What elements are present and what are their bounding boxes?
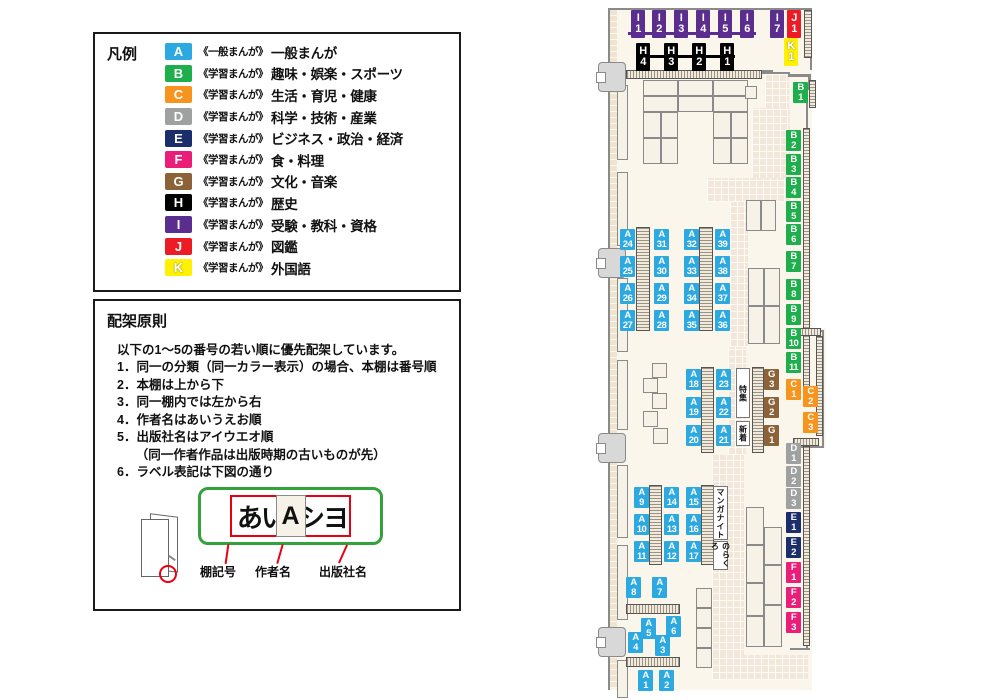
- shelf-unit: [643, 138, 661, 164]
- door: [598, 62, 626, 92]
- principle-item: 4．作者名はあいうえお順: [117, 412, 436, 430]
- shelf-label-D3: D3: [786, 488, 801, 509]
- pointer-line: [276, 544, 283, 564]
- shelf-label-B7: B7: [786, 251, 801, 272]
- legend-type-label: 《一般まんが》: [198, 44, 268, 59]
- shelf-label-A1: A1: [638, 670, 653, 691]
- shelf-label-A24: A24: [620, 229, 635, 250]
- shelf-unit: [764, 268, 780, 306]
- shelf-strip: [803, 446, 810, 646]
- shelf-label-A4: A4: [628, 632, 643, 653]
- shelf-unit: [748, 268, 764, 306]
- shelf-label-B11: B11: [786, 352, 801, 373]
- shelf-unit: [678, 80, 713, 96]
- legend-type-label: 《学習まんが》: [198, 109, 268, 124]
- wall: [790, 648, 810, 650]
- shelf-label-K1: K1: [784, 38, 798, 66]
- legend-category-label: 図鑑: [271, 236, 297, 256]
- legend-row-I: I 《学習まんが》 受験・教科・資格: [165, 214, 403, 236]
- shelf-label-D1: D1: [786, 443, 801, 464]
- shelf-label-A33: A33: [684, 256, 699, 277]
- shelf-strip: [701, 367, 714, 453]
- shelf-strip: [649, 485, 662, 565]
- book-icon: [141, 515, 181, 579]
- shelf-unit: [661, 138, 678, 164]
- shelf-unit: [643, 411, 658, 427]
- shelf-label-B1: B1: [793, 82, 808, 103]
- shelf-label-C1: C1: [786, 379, 801, 400]
- shelf-label-A35: A35: [684, 310, 699, 331]
- walkway: [712, 655, 808, 680]
- shelf-unit: [696, 608, 712, 628]
- legend-title: 凡例: [107, 43, 137, 64]
- legend-row-D: D 《学習まんが》 科学・技術・産業: [165, 106, 403, 128]
- shelf-label-A28: A28: [654, 310, 669, 331]
- shelf-unit: [713, 112, 731, 138]
- page: { "legend": { "title": "凡例", "items": [ …: [0, 0, 1000, 700]
- shelf-label-A29: A29: [654, 283, 669, 304]
- principles-list: 1．同一の分類（同一カラー表示）の場合、本棚は番号順 2．本棚は上から下 3．同…: [117, 359, 436, 482]
- shelf-label-A23: A23: [716, 369, 731, 390]
- legend-category-label: 文化・音楽: [271, 171, 337, 191]
- shelf-unit: [617, 85, 628, 160]
- shelf-unit: [761, 200, 776, 231]
- shelf-label-A31: A31: [654, 229, 669, 250]
- walkway: [707, 178, 790, 202]
- shelf-label-A34: A34: [684, 283, 699, 304]
- shelf-label-G1: G1: [764, 425, 779, 446]
- legend-row-J: J 《学習まんが》 図鑑: [165, 235, 403, 257]
- new-arrivals-panel: 新着: [736, 421, 750, 446]
- shelf-unit: [746, 507, 764, 545]
- shelf-unit: [764, 605, 782, 647]
- norakuro-panel: のらくろ: [713, 541, 728, 570]
- shelf-label-G3: G3: [764, 369, 779, 390]
- legend-color-chip: B: [165, 65, 192, 82]
- legend-color-chip: F: [165, 151, 192, 168]
- shelf-unit: [643, 112, 661, 138]
- shelf-strip: [699, 227, 713, 331]
- shelf-label-I2: I2: [652, 10, 666, 38]
- shelf-label-A22: A22: [716, 397, 731, 418]
- shelf-label-B10: B10: [786, 328, 801, 349]
- shelf-unit: [643, 96, 678, 112]
- shelf-unit: [652, 363, 667, 378]
- caption-author: 作者名: [255, 563, 291, 580]
- legend-color-chip: C: [165, 86, 192, 103]
- manga-night-panel: マンガナイト: [713, 486, 728, 540]
- principles-intro: 以下の1～5の番号の若い順に優先配架しています。: [117, 339, 404, 358]
- shelf-strip: [626, 604, 680, 614]
- label-position-ring: [159, 565, 177, 583]
- legend-rows: A 《一般まんが》 一般まんが B 《学習まんが》 趣味・娯楽・スポーツ C 《…: [165, 41, 403, 279]
- shelf-label-A14: A14: [664, 487, 679, 508]
- shelf-label-B9: B9: [786, 304, 801, 325]
- shelf-label-A38: A38: [715, 256, 730, 277]
- legend-row-A: A 《一般まんが》 一般まんが: [165, 41, 403, 63]
- special-feature-panel: 特集: [736, 368, 750, 418]
- walkway: [765, 74, 789, 110]
- shelf-label-A15: A15: [686, 487, 701, 508]
- shelf-strip: [809, 80, 816, 108]
- legend-box: 凡例 A 《一般まんが》 一般まんが B 《学習まんが》 趣味・娯楽・スポーツ …: [93, 32, 461, 292]
- legend-type-label: 《学習まんが》: [198, 87, 268, 102]
- shelf-label-A37: A37: [715, 283, 730, 304]
- shelf-label-E2: E2: [786, 537, 801, 558]
- shelf-label-H4: H4: [636, 43, 650, 71]
- shelf-strip: [636, 227, 650, 331]
- shelf-label-G2: G2: [764, 397, 779, 418]
- shelf-strip: [752, 367, 764, 453]
- pointer-line: [338, 544, 348, 563]
- legend-row-E: E 《学習まんが》 ビジネス・政治・経済: [165, 127, 403, 149]
- label-example-shelf-code: A: [276, 495, 306, 537]
- legend-type-label: 《学習まんが》: [198, 66, 268, 81]
- principles-title: 配架原則: [107, 310, 167, 331]
- shelf-label-H3: H3: [664, 43, 678, 71]
- wall: [788, 74, 810, 77]
- shelf-unit: [764, 565, 782, 605]
- caption-publisher: 出版社名: [319, 563, 367, 580]
- shelf-unit: [748, 306, 764, 344]
- legend-type-label: 《学習まんが》: [198, 217, 268, 232]
- shelf-label-F1: F1: [786, 562, 801, 583]
- shelf-label-A10: A10: [634, 514, 649, 535]
- legend-color-chip: A: [165, 43, 192, 60]
- shelf-unit: [713, 80, 748, 96]
- legend-color-chip: K: [165, 259, 192, 276]
- legend-row-B: B 《学習まんが》 趣味・娯楽・スポーツ: [165, 63, 403, 85]
- shelf-unit: [746, 200, 761, 231]
- shelf-label-A32: A32: [684, 229, 699, 250]
- shelf-unit: [746, 583, 764, 616]
- shelf-unit: [745, 86, 757, 99]
- shelf-label-A18: A18: [686, 369, 701, 390]
- shelf-label-I6: I6: [740, 10, 754, 38]
- shelf-label-A25: A25: [620, 256, 635, 277]
- wall: [608, 8, 610, 690]
- shelf-label-I5: I5: [718, 10, 732, 38]
- shelf-unit: [653, 428, 668, 444]
- legend-type-label: 《学習まんが》: [198, 260, 268, 275]
- legend-type-label: 《学習まんが》: [198, 131, 268, 146]
- shelf-label-A19: A19: [686, 397, 701, 418]
- shelf-unit: [696, 648, 712, 668]
- legend-color-chip: E: [165, 130, 192, 147]
- legend-category-label: 外国語: [271, 258, 311, 278]
- shelf-strip: [803, 128, 810, 400]
- walkway: [752, 108, 790, 180]
- shelf-label-A16: A16: [686, 514, 701, 535]
- legend-category-label: 歴史: [271, 193, 297, 213]
- legend-category-label: ビジネス・政治・経済: [271, 128, 403, 148]
- shelf-strip: [626, 657, 680, 667]
- shelf-label-I4: I4: [696, 10, 710, 38]
- shelf-unit: [764, 527, 782, 565]
- shelf-unit: [678, 96, 713, 112]
- shelf-label-F2: F2: [786, 587, 801, 608]
- principle-item: 5．出版社名はアイウエオ順: [117, 429, 436, 447]
- shelf-label-A36: A36: [715, 310, 730, 331]
- shelf-label-D2: D2: [786, 466, 801, 487]
- shelf-label-C3: C3: [803, 412, 818, 433]
- shelf-label-C2: C2: [803, 386, 818, 407]
- legend-category-label: 生活・育児・健康: [271, 85, 377, 105]
- shelf-label-A2: A2: [659, 670, 674, 691]
- shelf-label-B6: B6: [786, 224, 801, 245]
- door: [598, 627, 626, 657]
- legend-type-label: 《学習まんが》: [198, 174, 268, 189]
- shelf-label-B4: B4: [786, 177, 801, 198]
- legend-row-C: C 《学習まんが》 生活・育児・健康: [165, 84, 403, 106]
- shelf-label-A8: A8: [626, 577, 641, 598]
- shelf-unit: [643, 378, 658, 393]
- principle-item: （同一作者作品は出版時期の古いものが先）: [117, 447, 436, 465]
- legend-type-label: 《学習まんが》: [198, 152, 268, 167]
- door: [598, 433, 626, 463]
- legend-row-F: F 《学習まんが》 食・料理: [165, 149, 403, 171]
- shelf-unit: [731, 138, 748, 164]
- shelf-unit: [617, 465, 628, 538]
- shelf-label-H2: H2: [692, 43, 706, 71]
- wall-fill: [610, 10, 617, 688]
- principle-item: 3．同一棚内では左から右: [117, 394, 436, 412]
- legend-color-chip: G: [165, 173, 192, 190]
- shelf-label-A6: A6: [666, 616, 681, 637]
- shelf-unit: [696, 588, 712, 608]
- legend-color-chip: I: [165, 216, 192, 233]
- shelf-label-A12: A12: [664, 541, 679, 562]
- shelf-label-B3: B3: [786, 154, 801, 175]
- shelf-unit: [661, 112, 678, 138]
- shelf-label-A21: A21: [716, 425, 731, 446]
- legend-color-chip: H: [165, 194, 192, 211]
- shelf-label-A17: A17: [686, 541, 701, 562]
- shelf-strip: [626, 70, 762, 79]
- shelf-unit: [746, 545, 764, 583]
- legend-row-H: H 《学習まんが》 歴史: [165, 192, 403, 214]
- shelf-label-I3: I3: [674, 10, 688, 38]
- shelf-strip: [804, 10, 812, 58]
- shelf-label-B8: B8: [786, 279, 801, 300]
- principle-item: 6．ラベル表記は下図の通り: [117, 464, 436, 482]
- shelf-unit: [713, 138, 731, 164]
- shelf-unit: [731, 112, 748, 138]
- caption-shelf-code: 棚記号: [200, 563, 236, 580]
- legend-row-K: K 《学習まんが》 外国語: [165, 257, 403, 279]
- legend-color-chip: D: [165, 108, 192, 125]
- shelf-label-A39: A39: [715, 229, 730, 250]
- shelf-label-A3: A3: [655, 635, 670, 656]
- legend-category-label: 一般まんが: [271, 42, 337, 62]
- principle-item: 2．本棚は上から下: [117, 377, 436, 395]
- principle-item: 1．同一の分類（同一カラー表示）の場合、本棚は番号順: [117, 359, 436, 377]
- shelf-unit: [652, 393, 667, 409]
- legend-row-G: G 《学習まんが》 文化・音楽: [165, 171, 403, 193]
- shelf-label-J1: J1: [787, 10, 801, 38]
- shelf-label-B2: B2: [786, 130, 801, 151]
- shelf-label-E1: E1: [786, 512, 801, 533]
- label-example-box: A あい シヨ: [198, 487, 383, 545]
- shelf-line: [628, 32, 756, 35]
- shelf-label-B5: B5: [786, 201, 801, 222]
- legend-type-label: 《学習まんが》: [198, 195, 268, 210]
- shelf-label-A20: A20: [686, 425, 701, 446]
- shelf-unit: [617, 360, 628, 430]
- legend-category-label: 科学・技術・産業: [271, 107, 377, 127]
- shelf-label-A26: A26: [620, 283, 635, 304]
- legend-category-label: 受験・教科・資格: [271, 215, 377, 235]
- shelf-label-A9: A9: [634, 487, 649, 508]
- shelf-label-A30: A30: [654, 256, 669, 277]
- shelving-principles-box: 配架原則 以下の1～5の番号の若い順に優先配架しています。 1．同一の分類（同一…: [93, 299, 461, 611]
- shelf-label-A7: A7: [652, 577, 667, 598]
- shelf-unit: [764, 306, 780, 344]
- legend-category-label: 食・料理: [271, 150, 324, 170]
- legend-type-label: 《学習まんが》: [198, 239, 268, 254]
- shelf-label-A13: A13: [664, 514, 679, 535]
- shelf-label-H1: H1: [720, 43, 734, 71]
- shelf-label-A27: A27: [620, 310, 635, 331]
- shelf-unit: [746, 616, 764, 647]
- shelf-unit: [713, 96, 748, 112]
- shelf-unit: [696, 628, 712, 648]
- legend-color-chip: J: [165, 238, 192, 255]
- legend-category-label: 趣味・娯楽・スポーツ: [271, 63, 403, 83]
- shelf-label-I7: I7: [770, 10, 784, 38]
- shelf-label-I1: I1: [631, 10, 645, 38]
- shelf-unit: [643, 80, 678, 96]
- shelf-label-A5: A5: [641, 618, 656, 639]
- shelf-label-A11: A11: [634, 541, 649, 562]
- shelf-label-F3: F3: [786, 612, 801, 633]
- wall: [762, 72, 790, 74]
- pointer-line: [225, 544, 230, 564]
